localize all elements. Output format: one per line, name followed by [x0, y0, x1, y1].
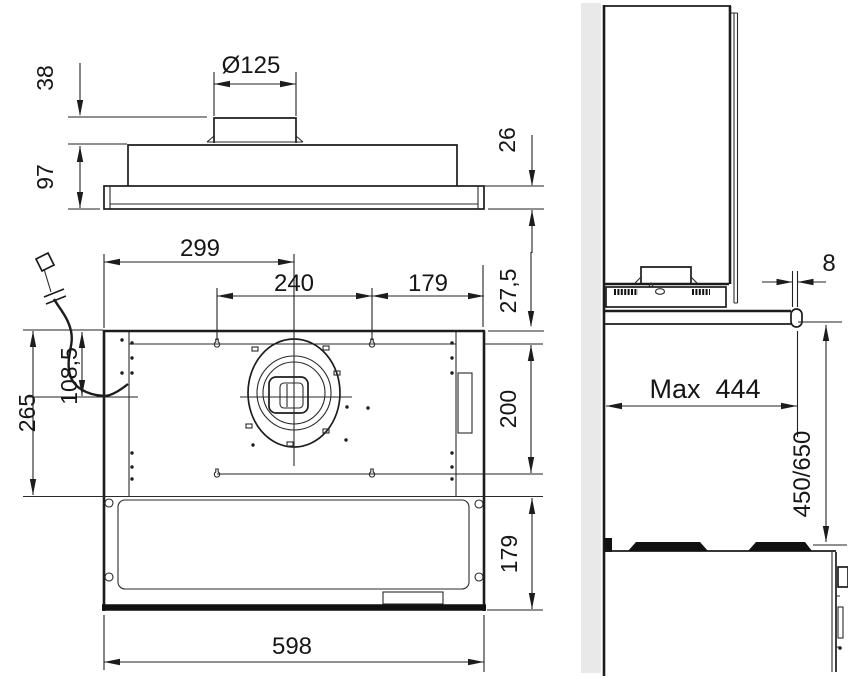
dim-collar-height: 38: [32, 65, 58, 91]
installation-drawing: Ø125 38 97 26: [0, 0, 848, 679]
dim-total-width: 598: [272, 633, 312, 660]
handle-profile: [838, 607, 843, 638]
front-view-dimensions: Ø125 38 97 26: [32, 52, 544, 253]
duct-collar: [214, 118, 296, 143]
dim-hob-clearance: 450/650: [789, 431, 816, 518]
dim-fixing-spacing-width: 240: [274, 270, 314, 297]
burner: [748, 542, 812, 551]
hood-body-side: [606, 287, 726, 307]
dim-top-edge-to-fixings: 27,5: [495, 269, 521, 314]
front-view: [104, 118, 484, 209]
dim-handle-projection: 8: [822, 250, 835, 277]
visor-inner-lines: [110, 186, 478, 209]
dim-fixing-spacing-depth: 200: [495, 390, 521, 428]
control-knob: [838, 567, 848, 587]
centerlines: [240, 332, 352, 466]
screw-holes: [120, 338, 453, 480]
switch-slot: [656, 289, 665, 295]
visor-panel: [118, 500, 469, 589]
wall: [581, 3, 601, 673]
dim-visor-height: 26: [494, 127, 520, 153]
dim-carcass-depth: 265: [14, 394, 40, 432]
dim-duct-center-from-left: 299: [180, 235, 220, 262]
hood-visor-front: [104, 186, 484, 209]
side-slot: [458, 373, 472, 433]
visor-screw: [105, 573, 113, 581]
hood-body-front: [128, 145, 457, 186]
side-view: [581, 3, 848, 676]
dim-body-height: 97: [32, 164, 58, 190]
duct-collar-base: [207, 136, 303, 142]
rating-label: [383, 592, 443, 604]
visor-screw: [475, 573, 483, 581]
plan-view: [23, 253, 543, 611]
dim-top-edge-to-duct-center: 108,5: [56, 347, 82, 405]
drawing-canvas: Ø125 38 97 26: [0, 0, 848, 679]
fan-outlet: [240, 332, 352, 466]
dim-max-depth: Max 444: [649, 374, 760, 404]
wall-upstand: [604, 538, 612, 552]
visor-screw: [105, 499, 113, 507]
hood-side: [605, 267, 802, 327]
inner-panel-lines: [129, 332, 456, 496]
visor-handle: [791, 309, 802, 327]
visor-screw: [475, 500, 483, 508]
wall-cabinet: [603, 6, 738, 303]
duct-collar-side: [641, 267, 691, 283]
dim-duct-diameter: Ø125: [222, 52, 281, 79]
burner: [628, 542, 708, 551]
hob-and-base-unit: [604, 538, 848, 672]
plug: [36, 253, 54, 271]
dim-fixing-to-right: 179: [408, 270, 448, 297]
dim-visor-depth: 179: [496, 535, 522, 573]
